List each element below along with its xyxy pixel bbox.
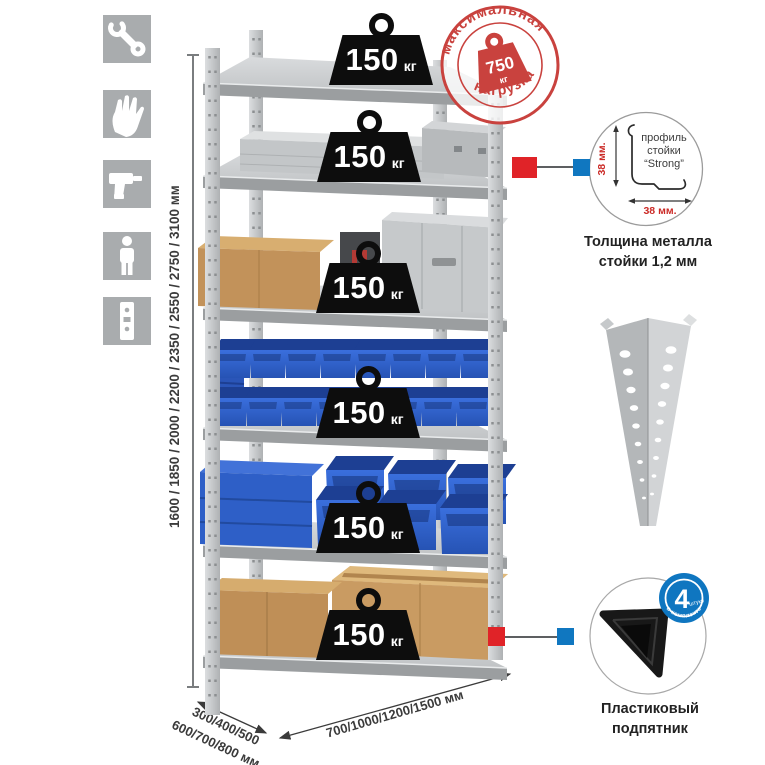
drill-icon xyxy=(103,160,151,208)
callout-line-bottom xyxy=(505,636,557,638)
callout-line-top xyxy=(537,166,573,168)
weight-handle-icon xyxy=(369,13,394,38)
product-infographic: 1600 / 1850 / 2000 / 2200 / 2350 / 2550 … xyxy=(0,0,765,765)
shelf-load-badge: 150кг xyxy=(316,588,420,660)
rack-post-icon xyxy=(103,297,151,345)
profile-label-2: стойки xyxy=(647,145,681,157)
shelf-load-unit: кг xyxy=(404,58,417,74)
included-count-badge: 4 штуки в комплекте xyxy=(659,573,709,623)
weight-handle-icon xyxy=(356,366,381,391)
max-load-stamp: максимальная нагрузка 750 кг xyxy=(437,2,563,128)
foot-caption: Пластиковый подпятник xyxy=(560,700,740,739)
profile-label-1: профиль xyxy=(641,132,687,144)
profile-dim-vertical: 38 мм. xyxy=(596,142,608,175)
weight-handle-icon xyxy=(357,110,382,135)
callout-marker-red-top xyxy=(512,157,537,178)
corner-post-image xyxy=(598,308,698,533)
profile-dim-horizontal: 38 мм. xyxy=(643,205,676,217)
gloves-icon xyxy=(103,90,151,138)
shelf-load-value: 150 xyxy=(345,42,398,78)
wrench-icon xyxy=(103,15,151,63)
weight-handle-icon xyxy=(356,481,381,506)
included-count: 4 xyxy=(674,584,689,614)
plastic-foot-detail: 4 штуки в комплекте xyxy=(587,572,712,697)
weight-handle-icon xyxy=(356,241,381,266)
profile-label-3: “Strong” xyxy=(644,158,684,170)
shelf-load-badge: 150кг xyxy=(316,481,420,553)
callout-marker-blue-top xyxy=(573,159,590,176)
shelf-load-badge: 150кг xyxy=(316,366,420,438)
post-profile-detail: 38 мм. 38 мм. профиль стойки “Strong” xyxy=(588,111,704,227)
callout-marker-blue-bottom xyxy=(557,628,574,645)
callout-marker-red-bottom xyxy=(488,627,505,646)
shelf-load-badge: 150кг xyxy=(317,110,421,182)
weight-handle-icon xyxy=(356,588,381,613)
profile-caption: Толщина металла стойки 1,2 мм xyxy=(558,233,738,272)
shelf-load-badge: 150кг xyxy=(316,241,420,313)
person-icon xyxy=(103,232,151,280)
height-dimension-label: 1600 / 1850 / 2000 / 2200 / 2350 / 2550 … xyxy=(167,198,187,528)
shelf-load-badge: 150кг xyxy=(329,13,433,85)
